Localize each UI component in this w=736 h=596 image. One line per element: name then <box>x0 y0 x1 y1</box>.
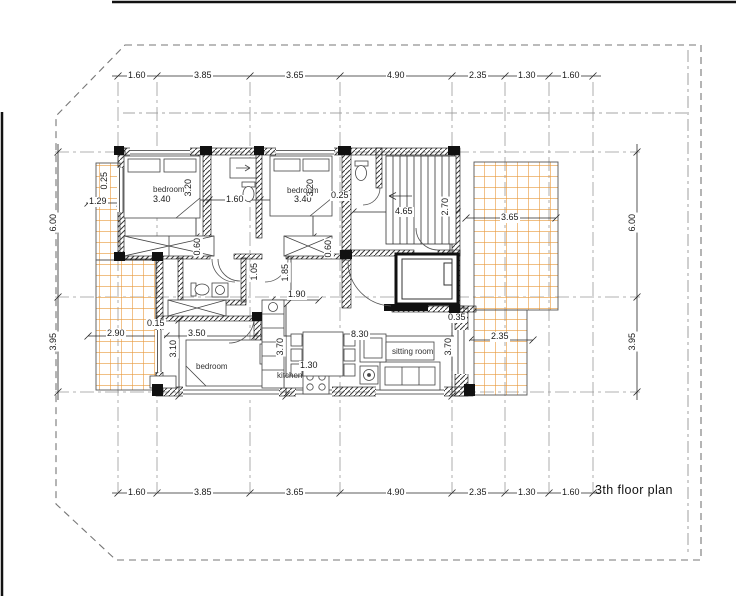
sofa <box>380 362 440 390</box>
dim-balcony-bottom-right-width: 2.35 <box>490 332 510 342</box>
closet-corridor <box>168 300 226 316</box>
dim-label-top-4: 4.90 <box>386 71 406 81</box>
dim-label-bottom-3: 3.65 <box>285 488 305 498</box>
dim-wall-bottom-left: 0.15 <box>146 319 166 329</box>
room-label-bedroom3: bedroom <box>196 362 228 371</box>
room-label-sitting-room: sitting room <box>392 347 433 356</box>
dim-bathroom-width: 1.60 <box>225 195 245 205</box>
dim-label-top-3: 3.65 <box>285 71 305 81</box>
room-label-kitchen: kitchen <box>277 371 302 380</box>
dim-bedroom3-depth: 3.10 <box>169 339 179 359</box>
dim-label-top-1: 1.60 <box>127 71 147 81</box>
dim-label-top-5: 2.35 <box>468 71 488 81</box>
dim-stair-hall-depth: 2.70 <box>441 197 451 217</box>
toilet-bathroom2 <box>191 283 209 296</box>
dim-door-right: 0.60 <box>324 239 334 259</box>
dim-label-bottom-2: 3.85 <box>193 488 213 498</box>
dim-kitchen-depth: 3.70 <box>276 337 286 357</box>
dim-label-bottom-6: 1.30 <box>517 488 537 498</box>
dim-living-total-width: 8.30 <box>350 330 370 340</box>
room-label-bedroom1: bedroom <box>153 185 185 194</box>
dim-closet-depth: 1.05 <box>250 262 260 282</box>
dim-label-top-2: 3.85 <box>193 71 213 81</box>
dim-label-left-2: 3.95 <box>49 332 59 352</box>
balcony-right-upper <box>474 162 558 310</box>
floorplan-drawing <box>0 0 736 596</box>
floor-plan-sheet: 1.60 3.85 3.65 4.90 2.35 1.30 1.60 1.60 … <box>0 0 736 596</box>
dim-label-bottom-7: 1.60 <box>561 488 581 498</box>
lamp-table <box>360 366 378 384</box>
drawing-title: 3th floor plan <box>595 483 673 497</box>
dim-bedroom1-width: 3.40 <box>152 195 172 205</box>
dim-sitting-depth: 3.70 <box>444 337 454 357</box>
dim-balcony-left-width: 1.29 <box>88 197 108 207</box>
dim-label-bottom-1: 1.60 <box>127 488 147 498</box>
dim-kitchen-width: 1.30 <box>299 361 319 371</box>
dim-door-left: 0.60 <box>193 237 203 257</box>
balcony-right-lower <box>474 310 527 395</box>
dim-wall-top-left: 0.25 <box>100 171 110 191</box>
dim-label-top-7: 1.60 <box>561 71 581 81</box>
entry-threshold <box>384 304 428 311</box>
dim-stairs-length: 4.65 <box>394 207 414 217</box>
elevator <box>384 254 458 311</box>
shower-bathroom1 <box>230 158 256 178</box>
toilet-wc <box>355 161 368 181</box>
room-label-bedroom2: bedroom <box>287 186 319 195</box>
dim-wall-bottom-right: 0.35 <box>447 313 467 323</box>
dim-bedroom3-width: 3.50 <box>187 329 207 339</box>
dim-label-bottom-4: 4.90 <box>386 488 406 498</box>
dim-balcony-left-lower-width: 2.90 <box>106 329 126 339</box>
dim-hall-width: 1.90 <box>287 290 307 300</box>
sink-bathroom2 <box>212 283 228 297</box>
dim-hall-depth: 1.85 <box>281 263 291 283</box>
dim-label-right-1: 6.00 <box>628 213 638 233</box>
dim-label-top-6: 1.30 <box>517 71 537 81</box>
dim-label-left-1: 6.00 <box>49 213 59 233</box>
dim-label-bottom-5: 2.35 <box>468 488 488 498</box>
dim-label-right-2: 3.95 <box>628 332 638 352</box>
dim-balcony-right-width: 3.65 <box>500 213 520 223</box>
dim-bedroom1-depth: 3.20 <box>184 178 194 198</box>
dim-wall-bedroom2: 0.25 <box>330 191 350 201</box>
